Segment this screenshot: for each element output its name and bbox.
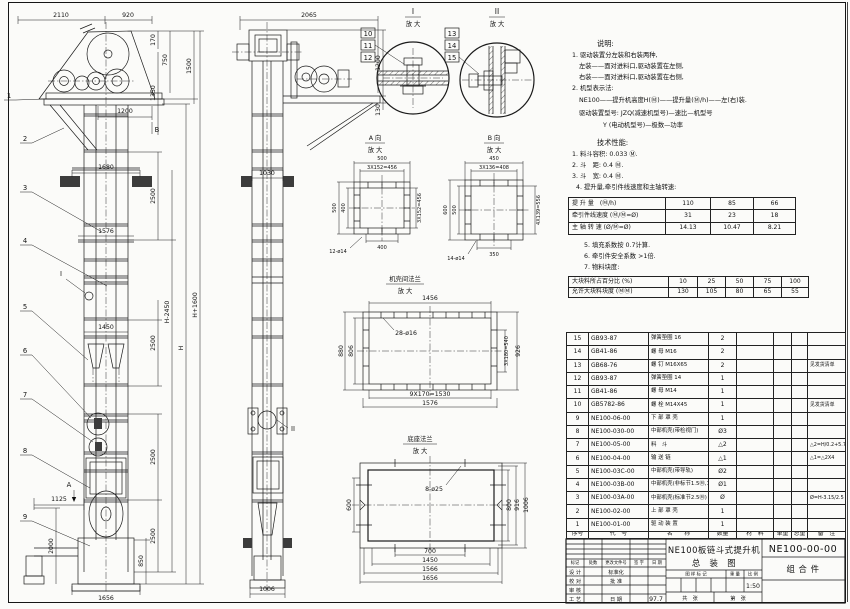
dim-label: 1680: [98, 164, 114, 171]
table-cell: 输 送 链: [649, 452, 709, 465]
table-cell: NE100-030-00: [589, 425, 649, 438]
dim-label: 600: [443, 205, 449, 215]
table-cell: 110: [666, 198, 711, 210]
table-cell: 料 斗: [649, 439, 709, 452]
dim-label: 800: [506, 499, 513, 511]
table-cell: NE100-06-00: [589, 412, 649, 425]
table-cell: [774, 346, 792, 359]
table-cell: GB93-87: [589, 372, 649, 385]
table-cell: 5: [567, 465, 589, 478]
table-row: 1NE100-01-00驱 动 装 置1: [567, 518, 846, 531]
hole-callout: 28-ø16: [395, 330, 417, 337]
table-cell: 螺 母 M16: [649, 346, 709, 359]
notes-title: 说明:: [597, 40, 614, 47]
table-cell: [774, 478, 792, 491]
table-cell: [737, 333, 774, 346]
dim-label: 1656: [422, 575, 438, 582]
table-cell: [774, 439, 792, 452]
table-row: 15GB93-87弹簧垫圈 162: [567, 333, 846, 346]
table-row: 2NE100-02-00上 部 罩 壳1: [567, 505, 846, 518]
table-cell: [774, 399, 792, 412]
tech-line: 6. 牵引件安全系数 >1倍.: [584, 254, 656, 260]
dim-label: 450: [489, 156, 499, 162]
dim-label: 1030: [259, 170, 275, 177]
dim-label: 500: [377, 156, 387, 162]
table-cell: [792, 399, 808, 412]
dim-label: 1576: [98, 228, 114, 235]
dim-label: 750: [162, 54, 169, 66]
table-cell: 1: [709, 372, 737, 385]
part-balloon: 5: [23, 303, 27, 311]
table-cell: 3: [567, 492, 589, 505]
table-cell: NE100-03A-00: [589, 492, 649, 505]
bom-header: 单重: [774, 532, 792, 539]
table-cell: [774, 518, 792, 531]
dim-label: 3X136=408: [479, 165, 509, 171]
table-cell: 8: [567, 425, 589, 438]
hole-callout: 14-ø14: [447, 256, 465, 262]
table-row: 3NE100-03A-00中部机壳(标准节2.5Ⓜ)ØØ=H-3.15/2.5: [567, 492, 846, 505]
dim-label: 880: [338, 345, 345, 357]
view-a-flange: 500 3X152=456 500 400 3X152=456 400 12-ø…: [329, 133, 423, 255]
dim-label: 1576: [422, 400, 438, 407]
tech-line: 7. 物料块度:: [584, 265, 619, 271]
table-cell: △2: [709, 439, 737, 452]
table-cell: 66: [754, 198, 796, 210]
dim-label: 170: [150, 34, 157, 46]
table-cell: 130: [669, 287, 698, 298]
table-cell: 18: [754, 210, 796, 222]
detail-subtitle: 放 大: [406, 19, 421, 28]
table-cell: [808, 333, 846, 346]
table-cell: [774, 465, 792, 478]
table-cell: Ø3: [709, 425, 737, 438]
table-cell: GB41-86: [589, 386, 649, 399]
table-cell: 12: [567, 372, 589, 385]
table-row: 6NE100-04-00输 送 链△1△1=△2X4: [567, 452, 846, 465]
view-title: 底座法兰: [407, 434, 432, 443]
part-balloon: 1: [7, 92, 11, 100]
table-cell: 9: [567, 412, 589, 425]
table-cell: [792, 412, 808, 425]
dim-label: 3X180=540: [504, 336, 510, 366]
view-subtitle: 放 大: [413, 446, 428, 455]
table-cell: 主 轴 转 速 (Ø/Ⓜ=Ø): [569, 222, 666, 234]
table-cell: GB41-86: [589, 346, 649, 359]
dim-label: 3X152=456: [367, 165, 397, 171]
table-cell: 中部机壳(带导轨): [649, 465, 709, 478]
table-cell: △2=H/0.2+5.75: [808, 439, 846, 452]
table-cell: [737, 452, 774, 465]
dim-label: 2065: [301, 12, 317, 19]
table-cell: NE100-02-00: [589, 505, 649, 518]
note-line: 2. 机型表示法:: [572, 86, 614, 92]
table-cell: [774, 359, 792, 372]
table-cell: [737, 478, 774, 491]
bom-header: 备 注: [808, 532, 846, 539]
view-title: A 向: [369, 133, 382, 142]
view-title: B 向: [488, 133, 501, 142]
table-row: 13GB68-76螺 钉 M16X652见发货清单: [567, 359, 846, 372]
note-line: 1. 驱动装置分左装和右装两种,: [572, 53, 658, 59]
part-balloon: 13: [448, 30, 457, 38]
view-title: 机壳间法兰: [389, 274, 420, 283]
dim-label: 4X139=556: [536, 195, 542, 225]
note-line: 驱动装置型号: JZQ(减速机型号)—速比—机型号: [579, 111, 713, 117]
casing-flange-detail: 1456 880 806 28-ø16 3X180=540 926 9X170=…: [338, 274, 522, 408]
dim-label: 1656: [98, 595, 114, 602]
dim-label: 2500: [150, 449, 157, 465]
view-subtitle: 放 大: [398, 286, 413, 295]
bom-header: 数量: [709, 532, 737, 539]
right-panel: 说明: 1. 驱动装置分左装和右装两种, 左装——面对进料口,驱动装置在左侧, …: [563, 0, 848, 609]
dim-label: 9X170=1530: [410, 391, 451, 398]
dim-label: 2500: [150, 528, 157, 544]
table-cell: 2: [709, 333, 737, 346]
table-cell: 14.13: [666, 222, 711, 234]
table-cell: [737, 386, 774, 399]
dim-label: H-2450: [164, 301, 171, 324]
table-row: 9NE100-06-00下 部 罩 壳1: [567, 412, 846, 425]
table-cell: NE100-04-00: [589, 452, 649, 465]
table-cell: 下 部 罩 壳: [649, 412, 709, 425]
dim-label: 1200: [117, 108, 133, 115]
table-cell: [792, 346, 808, 359]
table-cell: GB93-87: [589, 333, 649, 346]
dim-label: 1125: [51, 496, 67, 503]
table-cell: [737, 492, 774, 505]
table-row: 大块料所占百分比 (%)10255075100: [569, 277, 809, 288]
table-cell: 允许大块料块度 (ⓂⓂ): [569, 287, 669, 298]
dim-label: 2500: [150, 188, 157, 204]
table-row: 4NE100-03B-00中部机壳(非标节1.5Ⓜ,1Ⓜ)Ø1: [567, 478, 846, 491]
table-cell: 螺 栓 M14X45: [649, 399, 709, 412]
tech-line: 2. 斗 距: 0.4 Ⓜ.: [572, 163, 623, 169]
dim-label: 130: [375, 104, 382, 116]
dim-label: 400: [377, 245, 387, 251]
dim-label: 500: [452, 205, 458, 215]
dim-label: 1450: [98, 324, 114, 331]
table-cell: [808, 478, 846, 491]
table-cell: 1: [709, 505, 737, 518]
table-cell: 15: [567, 333, 589, 346]
table-cell: 中部机壳(带检视门): [649, 425, 709, 438]
table-cell: [792, 359, 808, 372]
table-cell: [792, 518, 808, 531]
drawing-sheet: 2110 920 170 750 1350 1500 1200 1680 250…: [0, 0, 850, 609]
table-cell: 螺 母 M14: [649, 386, 709, 399]
table-cell: [774, 505, 792, 518]
table-cell: [774, 492, 792, 505]
table-cell: [792, 386, 808, 399]
table-cell: GB5782-86: [589, 399, 649, 412]
view-marker-b: B: [155, 126, 160, 134]
part-balloon: 3: [23, 184, 27, 192]
note-line: 左装——面对进料口,驱动装置在左侧,: [579, 64, 684, 70]
table-cell: [792, 439, 808, 452]
dim-label: 350: [489, 252, 499, 258]
part-balloon: 12: [364, 54, 373, 62]
dim-label: 1450: [422, 557, 438, 564]
dim-label: 400: [341, 203, 347, 213]
table-cell: 10: [669, 277, 698, 288]
table-cell: 大块料所占百分比 (%): [569, 277, 669, 288]
dim-label: 1566: [422, 566, 438, 573]
table-cell: 见发货清单: [808, 399, 846, 412]
part-balloon: 6: [23, 347, 27, 355]
dim-label: 806: [348, 345, 355, 357]
table-cell: [792, 505, 808, 518]
bom-header: 材 料: [737, 532, 774, 539]
dim-label: 3X152=456: [417, 193, 423, 223]
table-cell: 见发货清单: [808, 359, 846, 372]
table-cell: 11: [567, 386, 589, 399]
dim-label: 2500: [150, 335, 157, 351]
table-cell: 25: [698, 277, 726, 288]
base-flange-detail: 600 8-ø25 800 916 1006 700 1450 1566 165…: [346, 434, 530, 584]
table-cell: 10.47: [711, 222, 754, 234]
tech-line: 4. 提升量,牵引件线速度和主轴转速:: [576, 185, 676, 191]
table-row: 10GB5782-86螺 栓 M14X451见发货清单: [567, 399, 846, 412]
table-cell: [792, 333, 808, 346]
tech-title: 技术性能:: [597, 139, 628, 146]
note-line: NE100——提升机高度H(Ⓜ)——提升量(Ⓜ/h)——左(右)装.: [579, 98, 747, 104]
bom-header-row: 序号 代 号 名 称 数量 材 料 单重 总重 备 注: [567, 532, 846, 539]
table-cell: NE100-01-00: [589, 518, 649, 531]
table-cell: [792, 478, 808, 491]
dim-label: 920: [122, 12, 134, 19]
note-line: Y (电动机型号)—极数—功率: [603, 123, 683, 129]
lump-size-table: 大块料所占百分比 (%)10255075100允许大块料块度 (ⓂⓂ)13010…: [568, 276, 809, 298]
table-cell: 4: [567, 478, 589, 491]
note-line: 右装——面对进料口,驱动装置在右侧,: [579, 75, 684, 81]
table-cell: 8.21: [754, 222, 796, 234]
table-row: 牵引件线速度 (Ⓜ/Ⓜ=Ø)312318: [569, 210, 796, 222]
side-elevation-view: 2065 1200 130 1030 1006 10 11 12 II: [232, 12, 404, 598]
table-cell: 2: [567, 505, 589, 518]
table-cell: 螺 钉 M16X65: [649, 359, 709, 372]
table-cell: 驱 动 装 置: [649, 518, 709, 531]
table-cell: [737, 518, 774, 531]
table-cell: △1: [709, 452, 737, 465]
table-row: 8NE100-030-00中部机壳(带检视门)Ø3: [567, 425, 846, 438]
table-cell: NE100-03B-00: [589, 478, 649, 491]
hole-callout: 12-ø14: [329, 249, 347, 255]
table-cell: [774, 372, 792, 385]
dim-label: 1006: [523, 497, 530, 513]
dim-label: 1456: [422, 295, 438, 302]
table-cell: 1: [567, 518, 589, 531]
table-cell: [792, 492, 808, 505]
table-cell: 50: [726, 277, 754, 288]
dim-label: H+1600: [192, 292, 199, 318]
dim-label: 926: [515, 345, 522, 357]
tech-line: 5. 填充系数按 0.7计算.: [584, 243, 650, 249]
table-row: 主 轴 转 速 (Ø/Ⓜ=Ø)14.1310.478.21: [569, 222, 796, 234]
bom-table: 15GB93-87弹簧垫圈 16214GB41-86螺 母 M16213GB68…: [566, 332, 846, 539]
table-cell: 2: [709, 359, 737, 372]
table-cell: 23: [711, 210, 754, 222]
table-cell: Ø1: [709, 478, 737, 491]
view-marker-a: A: [67, 481, 72, 489]
table-cell: [737, 412, 774, 425]
part-balloon: 2: [23, 135, 27, 143]
table-cell: [737, 399, 774, 412]
front-elevation-view: 2110 920 170 750 1350 1500 1200 1680 250…: [4, 12, 204, 602]
dim-label: 1350: [150, 85, 157, 101]
table-cell: △1=△2X4: [808, 452, 846, 465]
table-cell: 13: [567, 359, 589, 372]
dim-label: 1006: [259, 586, 275, 593]
table-cell: [792, 465, 808, 478]
dim-label: 850: [138, 555, 145, 567]
table-cell: [737, 439, 774, 452]
table-row: 7NE100-05-00料 斗△2△2=H/0.2+5.75: [567, 439, 846, 452]
table-cell: 100: [782, 277, 809, 288]
table-cell: 1: [709, 518, 737, 531]
table-cell: 7: [567, 439, 589, 452]
table-row: 提 升 量 (Ⓜ/h)1108566: [569, 198, 796, 210]
table-cell: [774, 425, 792, 438]
table-cell: [737, 425, 774, 438]
table-cell: NE100-05-00: [589, 439, 649, 452]
table-cell: [774, 386, 792, 399]
table-cell: [808, 425, 846, 438]
table-cell: [808, 518, 846, 531]
table-cell: 上 部 罩 壳: [649, 505, 709, 518]
bom-header: 总重: [792, 532, 808, 539]
table-cell: [808, 412, 846, 425]
table-cell: 14: [567, 346, 589, 359]
view-subtitle: 放 大: [487, 145, 502, 154]
table-cell: GB68-76: [589, 359, 649, 372]
part-balloon: 9: [23, 513, 27, 521]
table-cell: Ø: [709, 492, 737, 505]
dim-label: 916: [514, 499, 521, 511]
table-cell: 牵引件线速度 (Ⓜ/Ⓜ=Ø): [569, 210, 666, 222]
table-cell: [737, 505, 774, 518]
table-cell: Ø2: [709, 465, 737, 478]
dim-label: 700: [424, 548, 436, 555]
table-cell: 75: [754, 277, 782, 288]
bom-header: 名 称: [649, 532, 709, 539]
detail-title: I: [412, 7, 414, 16]
table-cell: [737, 372, 774, 385]
table-row: 14GB41-86螺 母 M162: [567, 346, 846, 359]
detail-marker-ii: II: [291, 425, 295, 433]
table-cell: [808, 386, 846, 399]
view-b-flange: 450 3X136=408 600 500 4X139=556 350 14-ø…: [443, 133, 542, 262]
table-cell: [808, 465, 846, 478]
table-row: 12GB93-87弹簧垫圈 141: [567, 372, 846, 385]
table-row: 允许大块料块度 (ⓂⓂ)130105806555: [569, 287, 809, 298]
table-row: 5NE100-03C-00中部机壳(带导轨)Ø2: [567, 465, 846, 478]
table-cell: 105: [698, 287, 726, 298]
table-cell: 2: [709, 346, 737, 359]
table-cell: 1: [709, 399, 737, 412]
part-balloon: 7: [23, 391, 27, 399]
table-cell: 弹簧垫圈 16: [649, 333, 709, 346]
table-cell: Ø=H-3.15/2.5: [808, 492, 846, 505]
tech-line: 1. 料斗容积: 0.033 Ⓜ.: [572, 152, 638, 158]
table-cell: 55: [782, 287, 809, 298]
table-cell: [808, 505, 846, 518]
table-cell: [792, 372, 808, 385]
view-subtitle: 放 大: [368, 145, 383, 154]
table-cell: 85: [711, 198, 754, 210]
table-cell: 6: [567, 452, 589, 465]
table-row: 11GB41-86螺 母 M141: [567, 386, 846, 399]
detail-marker-i: I: [60, 270, 62, 278]
bom-header: 序号: [567, 532, 589, 539]
part-balloon: 4: [23, 237, 27, 245]
table-cell: [774, 412, 792, 425]
dim-label: 2000: [48, 538, 55, 554]
table-cell: 31: [666, 210, 711, 222]
table-cell: 中部机壳(标准节2.5Ⓜ): [649, 492, 709, 505]
dim-label: 2110: [53, 12, 69, 19]
table-cell: [737, 465, 774, 478]
part-balloon: 14: [448, 42, 457, 50]
dim-label: 600: [346, 499, 353, 511]
detail-subtitle: 放 大: [490, 19, 505, 28]
table-cell: [792, 452, 808, 465]
bom-header: 代 号: [589, 532, 649, 539]
part-balloon: 11: [364, 42, 373, 50]
table-cell: 10: [567, 399, 589, 412]
table-cell: 1: [709, 386, 737, 399]
part-balloon: 8: [23, 447, 27, 455]
table-cell: [737, 359, 774, 372]
table-cell: 提 升 量 (Ⓜ/h): [569, 198, 666, 210]
table-cell: [774, 452, 792, 465]
table-cell: 1: [709, 412, 737, 425]
part-balloon: 10: [364, 30, 373, 38]
hole-callout: 8-ø25: [425, 486, 443, 493]
table-cell: [737, 346, 774, 359]
table-cell: NE100-03C-00: [589, 465, 649, 478]
table-cell: [792, 425, 808, 438]
table-cell: 弹簧垫圈 14: [649, 372, 709, 385]
performance-table: 提 升 量 (Ⓜ/h)1108566牵引件线速度 (Ⓜ/Ⓜ=Ø)312318主 …: [568, 197, 796, 235]
dim-label: 1500: [186, 58, 193, 74]
table-cell: [808, 346, 846, 359]
table-cell: 中部机壳(非标节1.5Ⓜ,1Ⓜ): [649, 478, 709, 491]
table-cell: 80: [726, 287, 754, 298]
table-cell: [774, 333, 792, 346]
table-cell: [808, 372, 846, 385]
part-balloon: 15: [448, 54, 457, 62]
tech-line: 3. 斗 宽: 0.4 Ⓜ.: [572, 174, 623, 180]
detail-title: II: [495, 7, 499, 16]
detail-i-view: I 放 大: [377, 7, 449, 114]
dim-label: H: [178, 345, 185, 350]
table-cell: 65: [754, 287, 782, 298]
dim-label: 500: [332, 203, 338, 213]
detail-ii-view: II 放 大 13 14 15: [445, 7, 534, 117]
